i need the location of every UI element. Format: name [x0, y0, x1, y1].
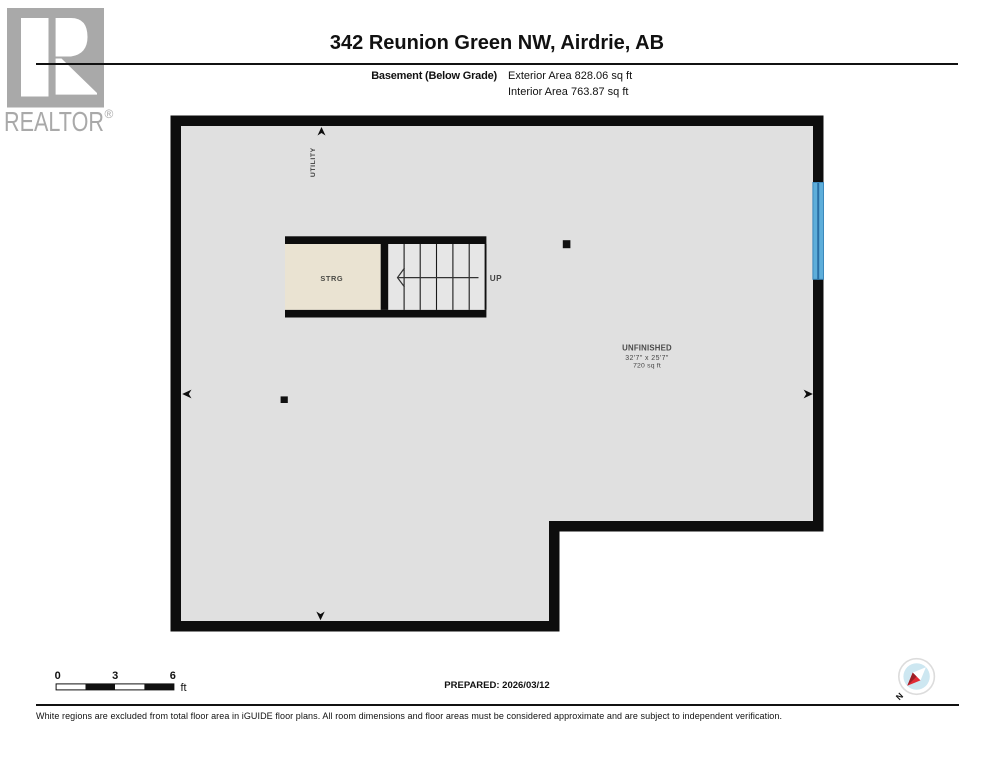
svg-text:UP: UP — [490, 274, 502, 283]
svg-text:N: N — [894, 691, 905, 702]
svg-text:UTILITY: UTILITY — [310, 147, 317, 177]
svg-text:32'7" x 25'7": 32'7" x 25'7" — [625, 355, 669, 362]
svg-text:STRG: STRG — [320, 274, 343, 283]
svg-text:UNFINISHED: UNFINISHED — [622, 343, 672, 352]
svg-text:720 sq ft: 720 sq ft — [633, 363, 661, 370]
